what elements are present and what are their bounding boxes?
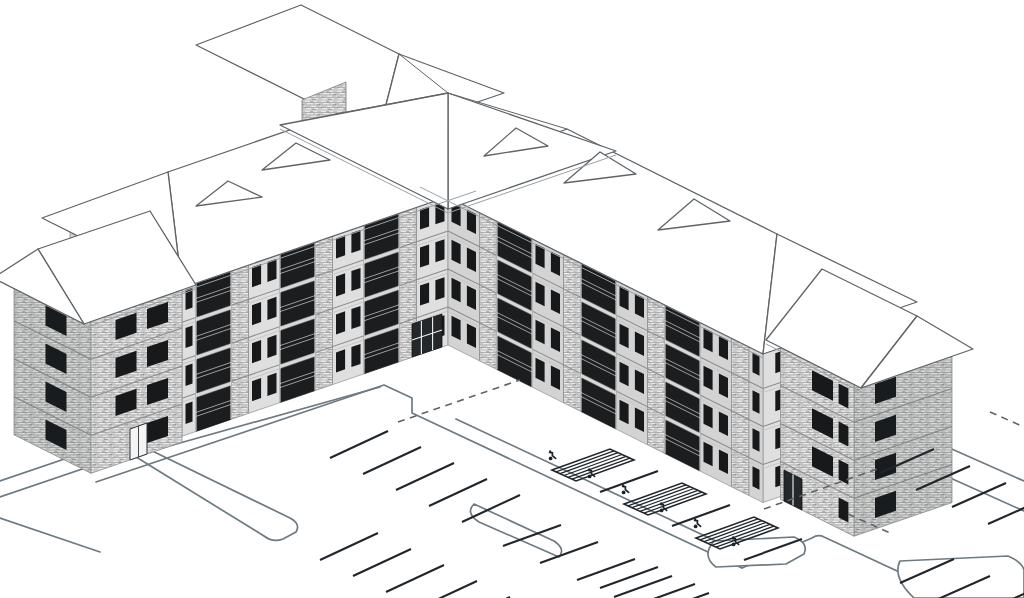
window (252, 340, 261, 363)
wheelchair-wheel (549, 457, 553, 461)
wheelchair-head (660, 502, 662, 504)
stone-pier (315, 227, 333, 391)
window (252, 378, 261, 401)
wheelchair-wheel (694, 525, 698, 529)
window (420, 245, 429, 268)
curb-island-corner (898, 556, 1024, 598)
window (267, 297, 276, 320)
window (186, 402, 193, 424)
window (252, 302, 261, 325)
wheelchair-head (588, 468, 590, 470)
wheelchair-wheel (622, 491, 626, 495)
window (753, 466, 760, 490)
window (351, 268, 360, 291)
window (336, 349, 345, 372)
wheelchair-head (622, 484, 624, 486)
architectural-rendering (0, 0, 1024, 598)
window (267, 335, 276, 358)
window (186, 364, 193, 386)
window (420, 283, 429, 306)
window (435, 277, 444, 300)
window (336, 273, 345, 296)
window (351, 344, 360, 367)
window (351, 306, 360, 329)
wheelchair-wheel (660, 509, 664, 513)
window (336, 311, 345, 334)
window (267, 373, 276, 396)
wheelchair-head (549, 450, 551, 452)
window (753, 428, 760, 452)
window (753, 390, 760, 414)
wheelchair-wheel (588, 475, 592, 479)
window (435, 239, 444, 262)
isometric-building-drawing (0, 0, 1024, 598)
window (186, 326, 193, 348)
stone-pier (231, 255, 249, 419)
wheelchair-head (732, 536, 734, 538)
wheelchair-head (694, 518, 696, 520)
wheelchair-wheel (732, 543, 736, 547)
